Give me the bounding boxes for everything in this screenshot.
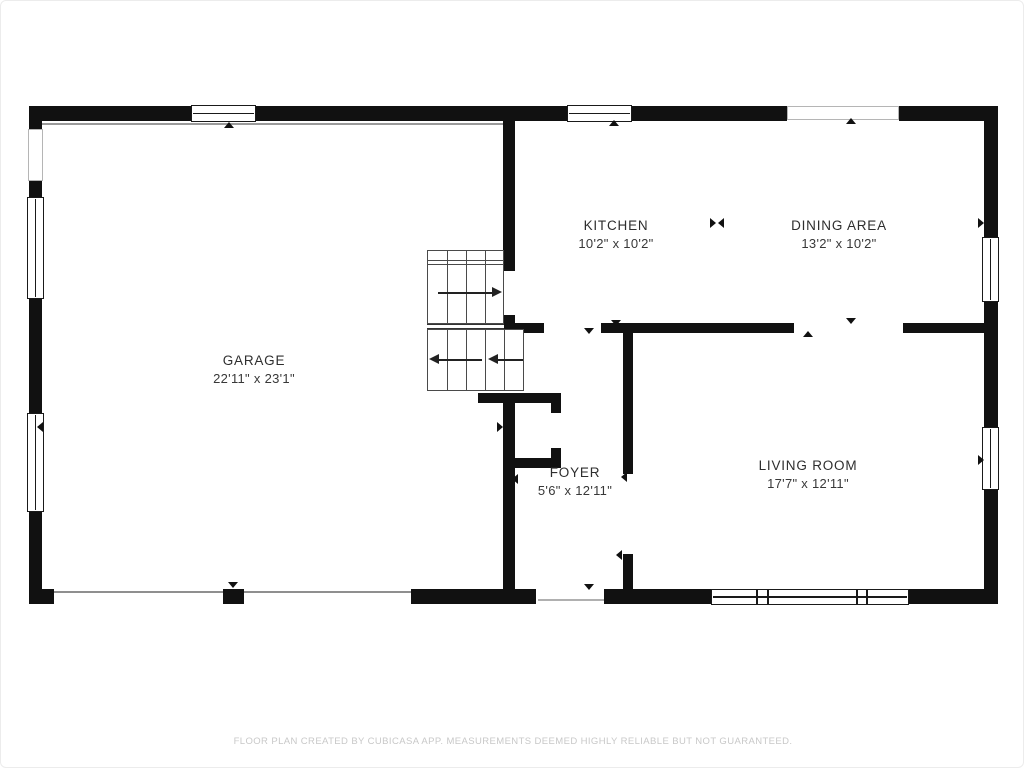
stair-step-line — [485, 330, 486, 390]
exterior-wall-right — [984, 106, 998, 238]
room-dimensions: 22'11" x 23'1" — [213, 371, 295, 386]
room-name: DINING AREA — [791, 218, 887, 233]
window-mullion — [990, 239, 992, 300]
door-marker-icon — [497, 422, 503, 432]
room-label-dining-area: DINING AREA 13'2" x 10'2" — [791, 218, 887, 251]
stair-down-arrow — [439, 359, 482, 361]
window-mullion — [193, 113, 254, 115]
exterior-wall-top — [254, 106, 568, 121]
window-divider — [866, 590, 868, 604]
exterior-wall-bottom — [908, 589, 998, 604]
foyer-living-wall — [623, 554, 633, 589]
garage-door-marker-icon — [228, 582, 238, 588]
door-marker-icon — [978, 218, 984, 228]
stair-step-line — [485, 251, 486, 323]
room-label-kitchen: KITCHEN 10'2" x 10'2" — [578, 218, 653, 251]
kitchen-top-window — [567, 105, 632, 122]
door-marker-icon — [224, 122, 234, 128]
living-bottom-window — [711, 589, 909, 605]
exterior-wall-bottom — [411, 589, 536, 604]
stair-down-arrowhead-icon — [488, 354, 498, 364]
front-door-line — [538, 599, 604, 601]
opening-marker-icon — [710, 218, 716, 228]
door-marker-icon — [512, 474, 518, 484]
exterior-wall-top — [29, 106, 193, 121]
window-mullion — [713, 596, 907, 598]
door-marker-icon — [846, 318, 856, 324]
exterior-wall-left — [29, 181, 42, 198]
opening-marker-icon — [718, 218, 724, 228]
window-mullion — [35, 415, 37, 510]
exterior-wall-right — [984, 301, 998, 428]
door-marker-icon — [621, 472, 627, 482]
window-mullion — [990, 429, 992, 488]
floor-plan-canvas: GARAGE 22'11" x 23'1" KITCHEN 10'2" x 10… — [0, 0, 1024, 768]
garage-kitchen-wall — [503, 121, 515, 271]
living-right-window — [982, 427, 999, 490]
closet-jamb — [551, 448, 561, 458]
exterior-wall-left — [29, 106, 42, 129]
door-marker-icon — [803, 331, 813, 337]
room-dimensions: 13'2" x 10'2" — [791, 236, 887, 251]
window-divider — [856, 590, 858, 604]
exterior-wall-bottom — [604, 589, 713, 604]
room-dimensions: 10'2" x 10'2" — [578, 236, 653, 251]
garage-top-window — [191, 105, 256, 122]
door-marker-icon — [584, 328, 594, 334]
room-name: GARAGE — [213, 353, 295, 368]
door-marker-icon — [611, 320, 621, 326]
stair-down-arrowhead-icon — [429, 354, 439, 364]
door-marker-icon — [609, 120, 619, 126]
stair-down-arrow — [497, 359, 523, 361]
door-marker-icon — [616, 550, 622, 560]
exterior-wall-left — [29, 511, 42, 604]
dining-south-wall — [903, 323, 984, 333]
front-door-marker-icon — [584, 584, 594, 590]
dining-patio-opening — [787, 106, 899, 120]
exterior-wall-left — [29, 298, 42, 414]
door-marker-icon — [37, 422, 43, 432]
garage-door-pier — [223, 589, 244, 604]
garage-side-door-opening — [28, 129, 43, 181]
room-label-foyer: FOYER 5'6" x 12'11" — [538, 465, 612, 498]
window-mullion — [35, 199, 37, 297]
dining-right-window — [982, 237, 999, 302]
garage-header-line — [42, 123, 503, 125]
room-dimensions: 17'7" x 12'11" — [759, 476, 858, 491]
closet-top-wall — [478, 393, 561, 403]
room-name: LIVING ROOM — [759, 458, 858, 473]
door-marker-icon — [846, 118, 856, 124]
exterior-wall-top — [631, 106, 787, 121]
stair-step-line — [447, 251, 448, 323]
room-label-garage: GARAGE 22'11" x 23'1" — [213, 353, 295, 386]
exterior-wall-right — [984, 489, 998, 604]
room-label-living-room: LIVING ROOM 17'7" x 12'11" — [759, 458, 858, 491]
kitchen-dining-south-wall — [601, 323, 794, 333]
stair-up-arrow — [438, 292, 493, 294]
room-dimensions: 5'6" x 12'11" — [538, 483, 612, 498]
room-name: FOYER — [538, 465, 612, 480]
window-divider — [756, 590, 758, 604]
foyer-living-wall — [623, 333, 633, 474]
stair-step-line — [466, 251, 467, 323]
closet-jamb — [551, 403, 561, 413]
door-marker-icon — [978, 455, 984, 465]
garage-foyer-wall — [503, 393, 515, 589]
footer-disclaimer: FLOOR PLAN CREATED BY CUBICASA APP. MEAS… — [234, 736, 793, 747]
window-divider — [767, 590, 769, 604]
garage-left-window-upper — [27, 197, 44, 299]
room-name: KITCHEN — [578, 218, 653, 233]
stair-up-arrowhead-icon — [492, 287, 502, 297]
window-mullion — [569, 113, 630, 115]
